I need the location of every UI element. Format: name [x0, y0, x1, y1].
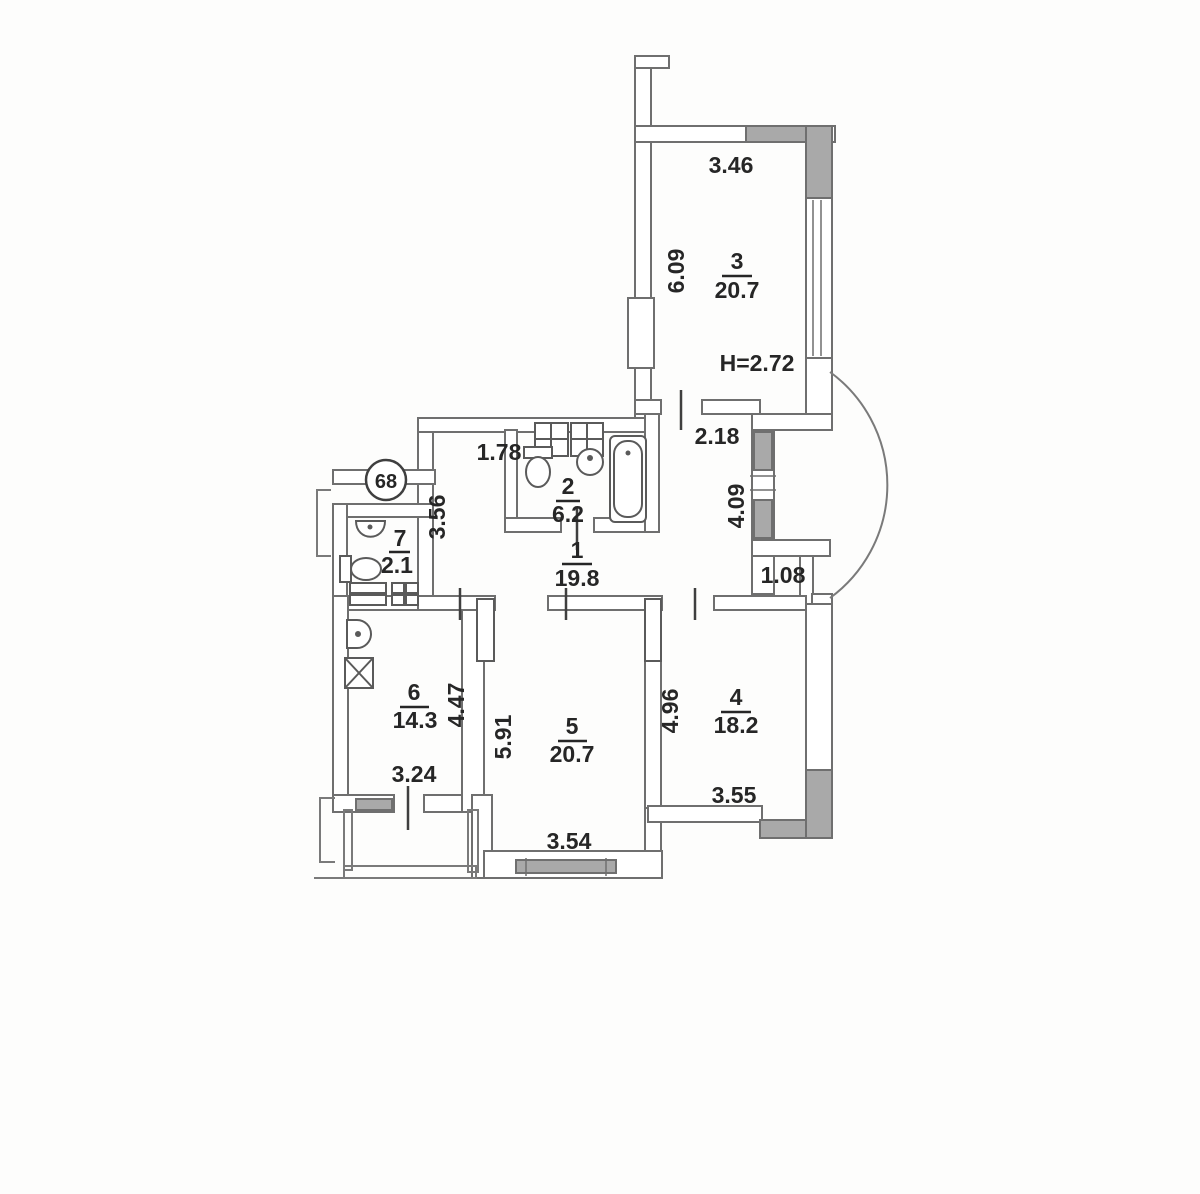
dim-room4-window: 3.55: [712, 782, 757, 808]
room4-area: 18.2: [714, 712, 759, 738]
room-label-4: 4 18.2: [714, 684, 759, 738]
room4-number: 4: [730, 684, 743, 710]
room3-number: 3: [731, 248, 744, 274]
dim-room3-depth: 6.09: [663, 249, 689, 294]
toilet-icon: [524, 447, 552, 487]
dim-room5-window: 3.54: [547, 828, 592, 854]
room2-number: 2: [562, 473, 575, 499]
wc-sink-icon: [356, 521, 385, 537]
room2-area: 6.2: [552, 501, 584, 527]
dim-hall-left: 3.56: [424, 495, 450, 540]
room-label-7: 7 2.1: [381, 525, 413, 578]
appliance-icon: [345, 658, 373, 688]
room-label-6: 6 14.3: [393, 679, 438, 733]
dimension-labels: 3.46 6.09 H=2.72 2.18 4.09 1.08 1.78 3.5…: [392, 152, 806, 854]
dim-bay-depth: 4.09: [723, 484, 749, 529]
room-label-2: 2 6.2: [552, 473, 584, 527]
balcony-outline: [344, 810, 478, 878]
dim-kitchen-depth: 4.47: [443, 683, 469, 728]
kitchen-sink-icon: [347, 620, 371, 648]
bathroom-fixtures: [524, 423, 646, 522]
dim-vestibule-width: 2.18: [695, 423, 740, 449]
bathtub-icon: [610, 436, 646, 522]
sink-icon: [577, 449, 603, 475]
ceiling-height-note: H=2.72: [720, 350, 795, 376]
dim-room3-width: 3.46: [709, 152, 754, 178]
bay-window-arc: [830, 372, 887, 598]
room6-number: 6: [408, 679, 421, 705]
dim-niche-width: 1.08: [761, 562, 806, 588]
room1-area: 19.8: [555, 565, 600, 591]
room1-number: 1: [571, 537, 584, 563]
dim-room4-depth: 4.96: [657, 689, 683, 734]
apartment-number: 68: [375, 471, 397, 493]
dim-room5-depth: 5.91: [490, 714, 516, 759]
room6-area: 14.3: [393, 707, 438, 733]
wc-toilet-icon: [340, 556, 381, 582]
room7-area: 2.1: [381, 552, 413, 578]
room-label-3: 3 20.7: [715, 248, 760, 303]
room5-area: 20.7: [550, 741, 595, 767]
room3-area: 20.7: [715, 277, 760, 303]
room5-number: 5: [566, 713, 579, 739]
dim-kitchen-window: 3.24: [392, 761, 437, 787]
vent-shaft-icon: [350, 583, 418, 605]
room-label-1: 1 19.8: [555, 537, 600, 591]
floor-plan-page: 68 3.46 6.09 H=2.72 2.18 4.09 1.08 1.78 …: [0, 0, 1200, 1194]
floor-plan-svg: 68 3.46 6.09 H=2.72 2.18 4.09 1.08 1.78 …: [0, 0, 1200, 1194]
dim-hall-top: 1.78: [477, 439, 522, 465]
apartment-number-badge: 68: [366, 460, 406, 500]
kitchen-fixtures: [345, 620, 373, 688]
left-ledge-upper: [317, 490, 331, 556]
room7-number: 7: [394, 525, 407, 551]
room-label-5: 5 20.7: [550, 713, 595, 767]
